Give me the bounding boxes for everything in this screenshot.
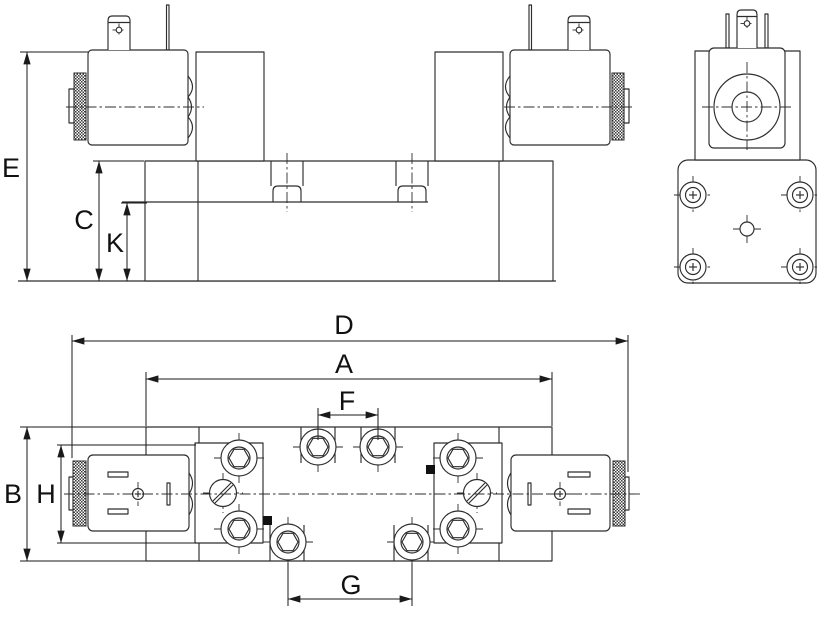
dimension-K: K (106, 203, 147, 281)
manual-override-knob (613, 461, 625, 526)
dimension-C: C (74, 161, 144, 281)
left-solenoid-top (69, 455, 193, 531)
manual-override-knob (74, 73, 86, 140)
override-knob-plate (624, 89, 629, 123)
manual-override-knob (612, 73, 624, 140)
vent-slot (568, 509, 590, 514)
override-knob-plate (625, 477, 629, 510)
right-solenoid (435, 5, 633, 161)
din-connector (737, 10, 757, 48)
pilot-adapter-block (435, 52, 503, 161)
solenoid-valve-drawing: E C K (0, 0, 827, 626)
dimension-label-A: A (335, 349, 353, 379)
override-knob-plate (69, 89, 74, 123)
override-knob-plate (69, 477, 73, 510)
connector-pin (529, 5, 532, 50)
front-view: E C K (2, 5, 633, 281)
index-mark (263, 516, 272, 525)
dimension-label-G: G (340, 570, 361, 600)
technical-drawing-page: E C K (0, 0, 827, 626)
valve-body-outline (145, 161, 553, 281)
dimension-label-B: B (4, 479, 22, 509)
dimension-label-K: K (106, 228, 124, 258)
dimension-label-D: D (334, 310, 354, 340)
connector-pin (167, 5, 170, 50)
connector-pin (726, 14, 729, 48)
index-mark (426, 465, 435, 474)
side-view (674, 10, 819, 286)
vent-slot (108, 472, 128, 477)
solenoid-coil (88, 50, 188, 145)
pilot-adapter-block (196, 52, 264, 161)
vent-slot (108, 509, 128, 514)
right-solenoid-top (508, 455, 630, 531)
right-end-plate (426, 433, 502, 554)
dimension-label-C: C (74, 205, 94, 235)
left-end-plate (195, 433, 272, 554)
solenoid-coil (510, 50, 610, 145)
left-solenoid (66, 5, 264, 161)
dimension-G: G (288, 563, 412, 606)
manual-override-knob (73, 461, 86, 526)
top-view: D A F G B H (4, 310, 640, 606)
vent-slot (568, 472, 590, 477)
dimension-label-H: H (36, 479, 56, 509)
dimension-label-E: E (2, 153, 20, 183)
connector-pin (765, 14, 768, 48)
dimension-label-F: F (339, 386, 356, 416)
